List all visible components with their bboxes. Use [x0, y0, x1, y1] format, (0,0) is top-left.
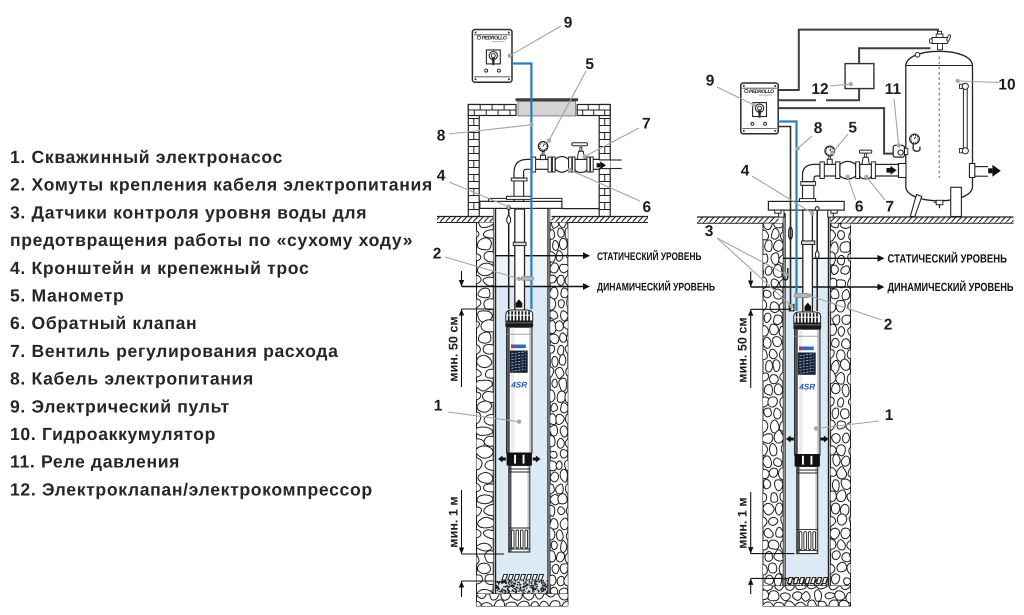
- svg-text:мин. 1 м: мин. 1 м: [736, 497, 750, 548]
- svg-text:предотвращения работы по «сухо: предотвращения работы по «сухому ходу»: [10, 230, 413, 250]
- svg-text:7: 7: [642, 115, 651, 132]
- svg-text:12. Электроклапан/электрокомпр: 12. Электроклапан/электрокомпрессор: [10, 479, 373, 499]
- svg-text:PEDROLLO: PEDROLLO: [482, 36, 507, 42]
- svg-text:4SR: 4SR: [510, 381, 527, 390]
- svg-text:3: 3: [705, 223, 714, 240]
- svg-text:4: 4: [741, 163, 750, 180]
- svg-text:мин. 1 м: мин. 1 м: [447, 496, 461, 547]
- svg-text:8: 8: [814, 120, 823, 137]
- svg-text:12: 12: [811, 81, 828, 98]
- svg-text:4: 4: [437, 168, 446, 185]
- svg-text:1: 1: [885, 407, 894, 424]
- svg-text:6: 6: [642, 199, 651, 216]
- svg-text:9. Электрический пульт: 9. Электрический пульт: [10, 396, 230, 416]
- svg-text:мин. 50 см: мин. 50 см: [736, 317, 750, 383]
- svg-text:5: 5: [585, 56, 594, 73]
- svg-text:7: 7: [885, 199, 894, 216]
- svg-text:PEDROLLO: PEDROLLO: [749, 89, 774, 95]
- svg-text:7. Вентиль регулирования расхо: 7. Вентиль регулирования расхода: [10, 341, 339, 361]
- svg-text:10: 10: [998, 77, 1015, 94]
- svg-text:9: 9: [706, 73, 715, 90]
- svg-text:СТАТИЧЕСКИЙ УРОВЕНЬ: СТАТИЧЕСКИЙ УРОВЕНЬ: [597, 250, 702, 263]
- svg-text:2: 2: [433, 246, 442, 263]
- svg-text:6. Обратный клапан: 6. Обратный клапан: [10, 313, 197, 333]
- svg-text:СТАТИЧЕСКИЙ УРОВЕНЬ: СТАТИЧЕСКИЙ УРОВЕНЬ: [888, 251, 1008, 265]
- svg-text:8: 8: [437, 128, 446, 145]
- svg-text:1. Скважинный электронасос: 1. Скважинный электронасос: [10, 147, 283, 167]
- svg-text:3. Датчики контроля уровня вод: 3. Датчики контроля уровня воды для: [10, 202, 367, 222]
- svg-text:5. Манометр: 5. Манометр: [10, 286, 124, 306]
- svg-text:11: 11: [885, 81, 902, 98]
- svg-text:4SR: 4SR: [798, 383, 815, 392]
- svg-text:4. Кронштейн и крепежный трос: 4. Кронштейн и крепежный трос: [10, 258, 309, 278]
- svg-text:ДИНАМИЧЕСКИЙ УРОВЕНЬ: ДИНАМИЧЕСКИЙ УРОВЕНЬ: [888, 280, 1014, 294]
- svg-text:8. Кабель электропитания: 8. Кабель электропитания: [10, 369, 254, 389]
- svg-text:1: 1: [434, 398, 443, 415]
- svg-text:10. Гидроаккумулятор: 10. Гидроаккумулятор: [10, 424, 216, 444]
- svg-text:2: 2: [884, 317, 893, 334]
- svg-text:5: 5: [848, 120, 857, 137]
- svg-text:6: 6: [855, 199, 864, 216]
- svg-text:2. Хомуты крепления кабеля эле: 2. Хомуты крепления кабеля электропитани…: [10, 175, 433, 195]
- svg-text:9: 9: [564, 15, 573, 32]
- svg-text:11. Реле давления: 11. Реле давления: [10, 452, 180, 472]
- svg-text:ДИНАМИЧЕСКИЙ УРОВЕНЬ: ДИНАМИЧЕСКИЙ УРОВЕНЬ: [597, 281, 715, 294]
- svg-text:мин. 50 см: мин. 50 см: [447, 316, 461, 382]
